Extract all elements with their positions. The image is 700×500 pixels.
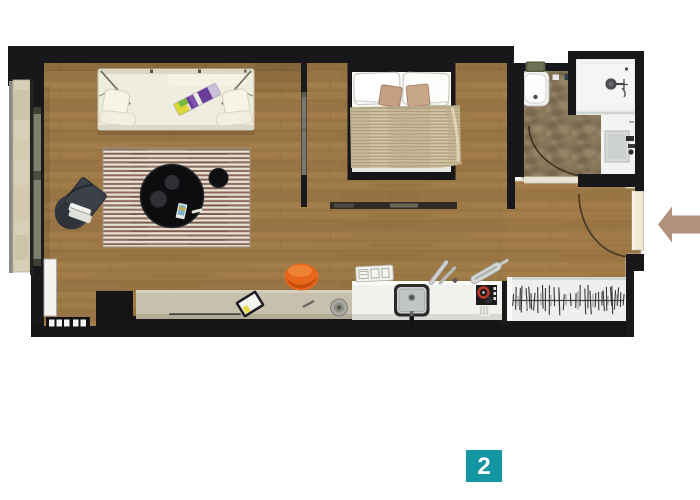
svg-text:2: 2 (477, 453, 490, 480)
